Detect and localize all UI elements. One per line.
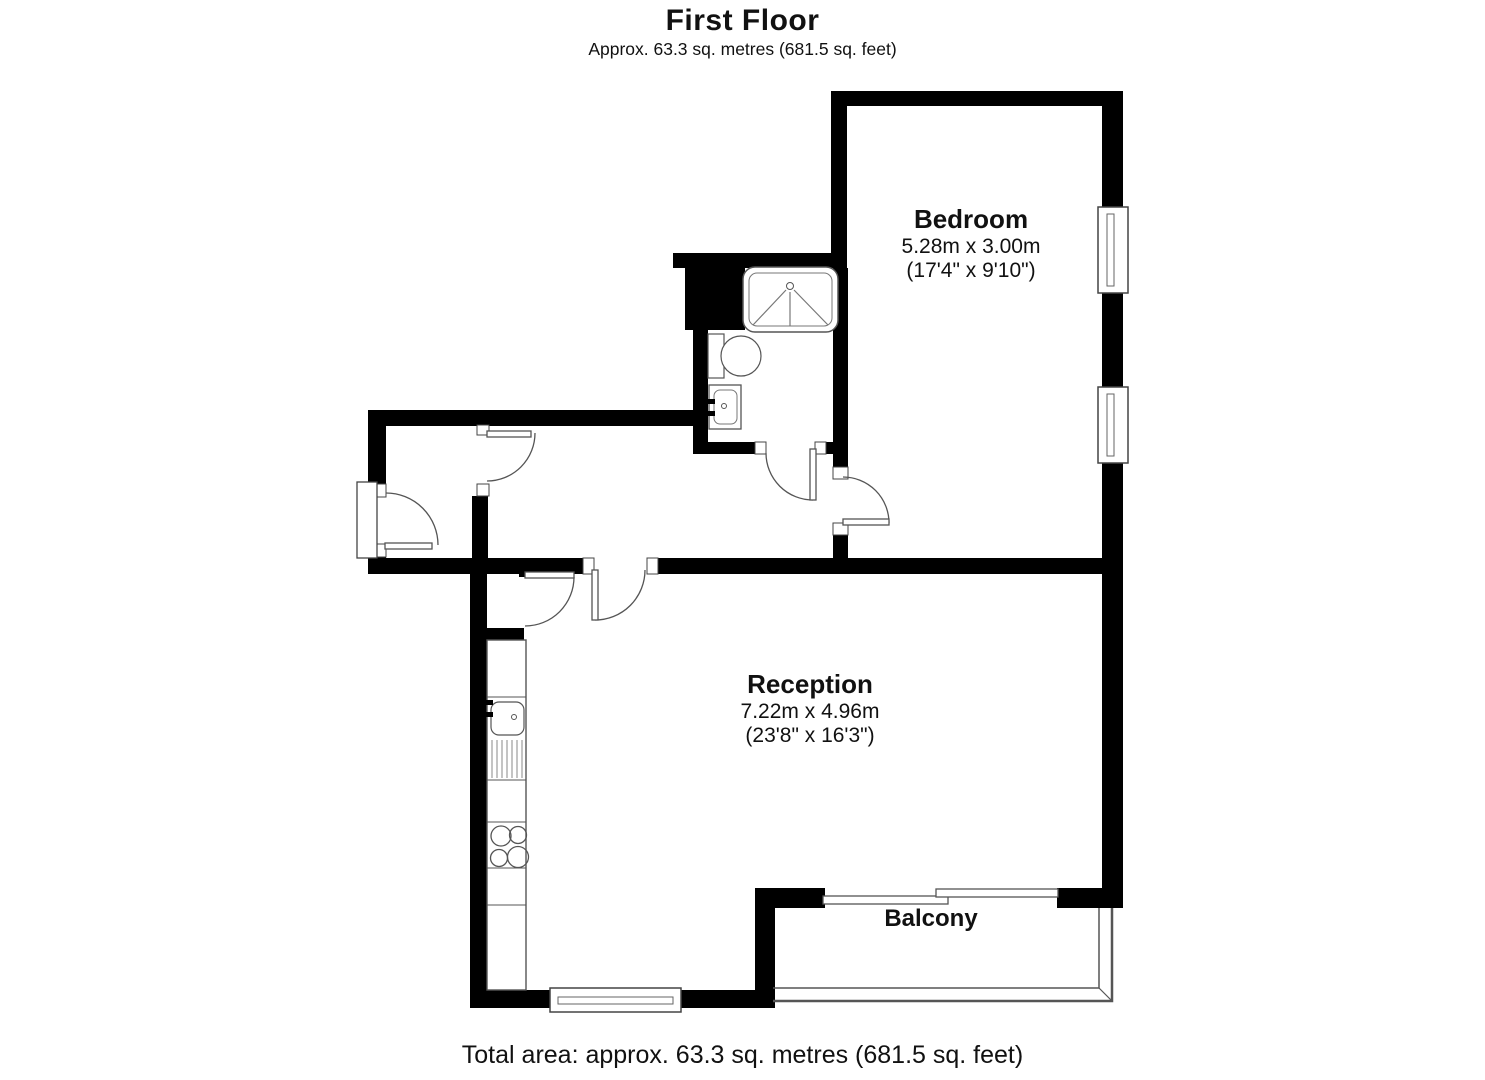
window-glazing: [1107, 394, 1114, 456]
reception-name: Reception: [660, 670, 960, 700]
wall-segment: [470, 990, 550, 1008]
door-arc-bedroom: [843, 477, 889, 523]
wall-segment: [685, 268, 745, 330]
balcony-corner-miter: [1099, 988, 1112, 1001]
door-jambs: [369, 425, 848, 574]
kitchen-counter: [487, 640, 526, 990]
door-arc-bathroom: [766, 453, 813, 500]
door-jamb: [815, 442, 826, 454]
wall-segment: [1102, 463, 1123, 908]
bedroom-dims-imperial: (17'4" x 9'10"): [821, 259, 1121, 283]
basin-tap: [702, 399, 715, 404]
kitchen-sink: [491, 702, 524, 735]
wall-segment: [693, 330, 708, 454]
door-arc-kitchen: [525, 577, 574, 626]
bedroom-dims-metric: 5.28m x 3.00m: [821, 235, 1121, 259]
doors: [385, 431, 889, 626]
door-arc-reception: [595, 570, 645, 620]
wall-segment: [826, 442, 848, 454]
door-panel-reception: [592, 570, 598, 620]
kitchen-tap: [479, 712, 493, 717]
door-panel-kitchen: [525, 572, 574, 578]
floorplan-drawing: [0, 0, 1485, 1080]
total-area-text: Total area: approx. 63.3 sq. metres (681…: [0, 1041, 1485, 1070]
window-glazing: [558, 997, 673, 1004]
drainer-lines: [492, 740, 522, 778]
sliding-door-panel: [823, 896, 948, 904]
sliding-door: [823, 889, 1058, 904]
entrance-door-frame: [357, 482, 377, 558]
door-arc-entrance: [386, 493, 438, 545]
basin-tap: [702, 411, 715, 416]
floorplan-page: First Floor Approx. 63.3 sq. metres (681…: [0, 0, 1485, 1080]
door-jamb: [477, 484, 489, 496]
door-jamb: [755, 442, 766, 454]
wall-segment: [470, 558, 487, 1008]
shower-drain: [787, 283, 794, 290]
wall-segment: [368, 410, 386, 486]
reception-dims-imperial: (23'8" x 16'3"): [660, 724, 960, 748]
reception-dims-metric: 7.22m x 4.96m: [660, 700, 960, 724]
wall-segment: [755, 888, 825, 908]
wall-segment: [658, 558, 1123, 574]
reception-label: Reception 7.22m x 4.96m (23'8" x 16'3"): [660, 670, 960, 748]
door-panel-hall: [487, 431, 531, 437]
wall-segment: [695, 442, 755, 454]
wall-segment: [831, 91, 1123, 106]
door-panel-bedroom: [843, 519, 889, 525]
wall-segment: [368, 410, 708, 426]
kitchen-tap: [479, 700, 493, 705]
door-arc-hall: [487, 433, 535, 481]
bedroom-name: Bedroom: [821, 205, 1121, 235]
balcony-label: Balcony: [831, 905, 1031, 933]
bedroom-label: Bedroom 5.28m x 3.00m (17'4" x 9'10"): [821, 205, 1121, 283]
toilet-bowl: [721, 336, 761, 376]
door-panel-entrance: [385, 543, 432, 549]
wall-segment: [487, 628, 524, 640]
kitchen-fixtures: [479, 640, 529, 990]
wall-segment: [1102, 106, 1123, 207]
sliding-door-panel: [936, 889, 1058, 897]
door-panel-bathroom: [810, 449, 816, 500]
wall-segment: [1102, 293, 1123, 387]
door-jamb: [647, 558, 658, 574]
